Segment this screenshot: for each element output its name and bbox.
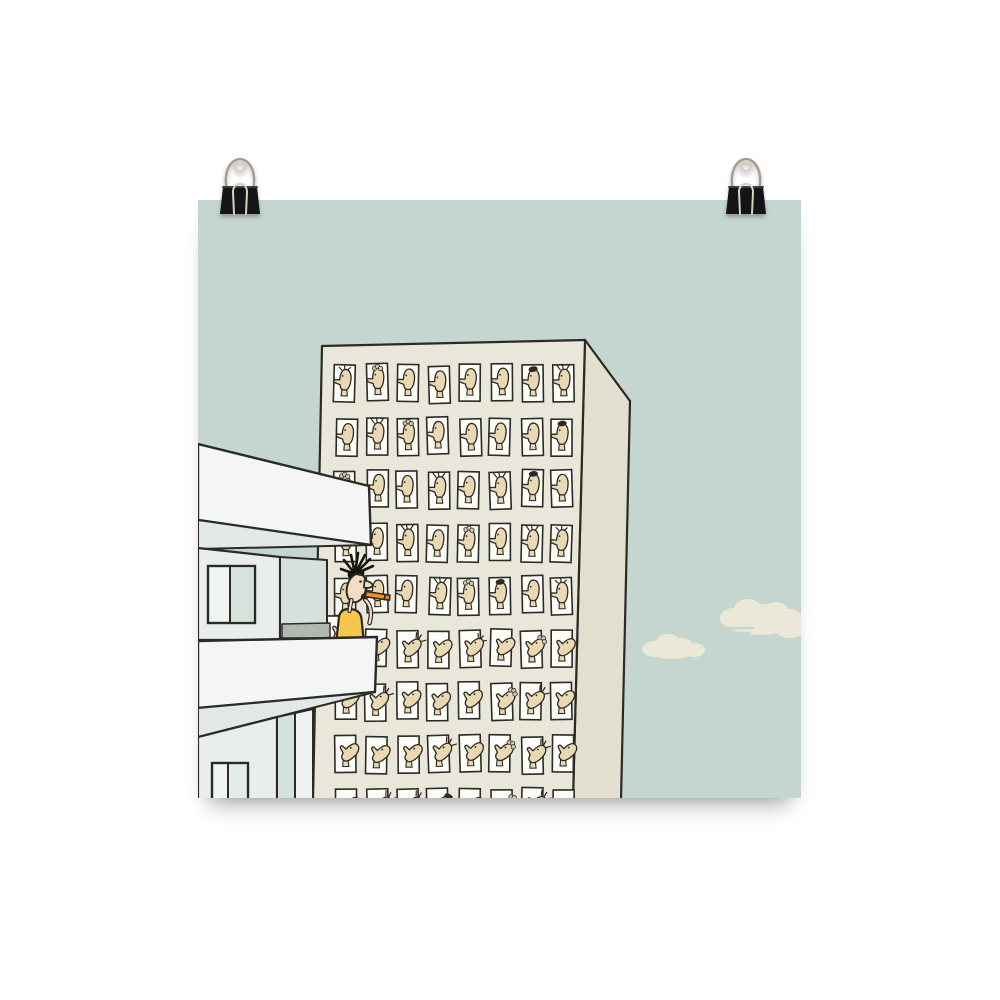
face-window xyxy=(397,419,419,456)
face-window xyxy=(457,471,479,508)
face-window xyxy=(367,418,388,456)
face-window xyxy=(395,575,417,612)
clip-wire-handle xyxy=(226,159,254,190)
face-window xyxy=(457,578,479,615)
face-window xyxy=(428,366,450,404)
face-window xyxy=(460,419,482,457)
face-window xyxy=(397,364,419,401)
face-window xyxy=(550,525,572,563)
face-window xyxy=(553,364,574,402)
binder-clip-left xyxy=(212,150,268,222)
face-window xyxy=(522,418,544,456)
clip-body xyxy=(220,187,260,214)
face-window xyxy=(336,419,358,456)
face-window xyxy=(491,364,512,401)
face-window xyxy=(333,365,355,403)
face-window xyxy=(521,525,543,563)
face-window xyxy=(457,525,479,562)
face-window xyxy=(551,470,573,508)
face-window xyxy=(522,365,543,402)
face-window xyxy=(396,471,418,508)
face-window xyxy=(489,471,511,509)
face-window xyxy=(489,577,511,614)
face-window xyxy=(426,525,448,563)
face-window xyxy=(429,577,451,615)
clip-wire-handle xyxy=(732,159,760,190)
face-window xyxy=(459,364,480,401)
face-window xyxy=(429,472,450,510)
clip-body xyxy=(726,187,766,214)
face-window xyxy=(551,419,572,456)
face-window xyxy=(522,469,544,506)
character-eye xyxy=(359,580,362,583)
poster-art xyxy=(198,200,801,798)
face-window xyxy=(427,417,449,455)
face-window xyxy=(522,575,544,612)
binder-clip-left-art xyxy=(212,150,268,222)
photo-stage xyxy=(0,0,1000,1000)
poster xyxy=(198,200,801,798)
face-window xyxy=(489,523,510,560)
cigarette-tip xyxy=(384,594,390,600)
face-window xyxy=(488,418,510,456)
binder-clip-right xyxy=(718,150,774,222)
binder-clip-right-art xyxy=(718,150,774,222)
face-window xyxy=(397,524,418,562)
face-window xyxy=(366,363,388,401)
face-window xyxy=(550,577,572,615)
